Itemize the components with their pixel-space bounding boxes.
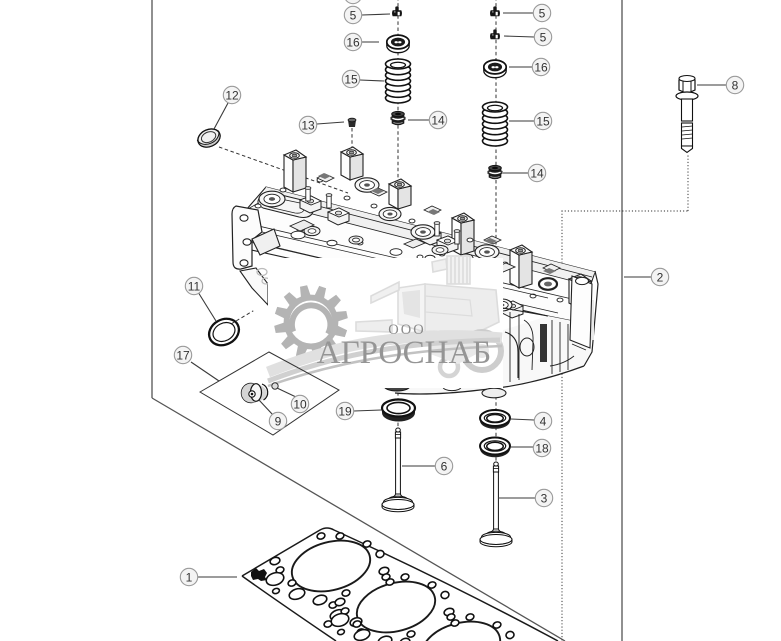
svg-text:19: 19: [338, 404, 352, 418]
svg-text:8: 8: [732, 78, 739, 92]
svg-text:11: 11: [188, 279, 201, 293]
svg-text:1: 1: [186, 570, 193, 584]
svg-text:6: 6: [441, 459, 448, 473]
svg-text:18: 18: [535, 441, 549, 455]
svg-text:4: 4: [540, 414, 547, 428]
svg-text:9: 9: [275, 414, 282, 428]
svg-text:2: 2: [657, 270, 664, 284]
svg-text:АГРОСНАБ: АГРОСНАБ: [317, 335, 492, 371]
svg-text:17: 17: [176, 348, 190, 362]
svg-text:16: 16: [346, 35, 360, 49]
svg-text:14: 14: [530, 166, 544, 180]
svg-text:14: 14: [431, 113, 445, 127]
svg-text:16: 16: [534, 60, 548, 74]
svg-text:3: 3: [541, 491, 548, 505]
svg-text:12: 12: [225, 88, 239, 102]
svg-text:15: 15: [536, 114, 550, 128]
svg-text:5: 5: [539, 6, 546, 20]
svg-text:15: 15: [344, 72, 358, 86]
svg-text:10: 10: [293, 397, 307, 411]
svg-text:5: 5: [540, 30, 547, 44]
svg-text:13: 13: [301, 118, 315, 132]
svg-text:5: 5: [350, 8, 357, 22]
